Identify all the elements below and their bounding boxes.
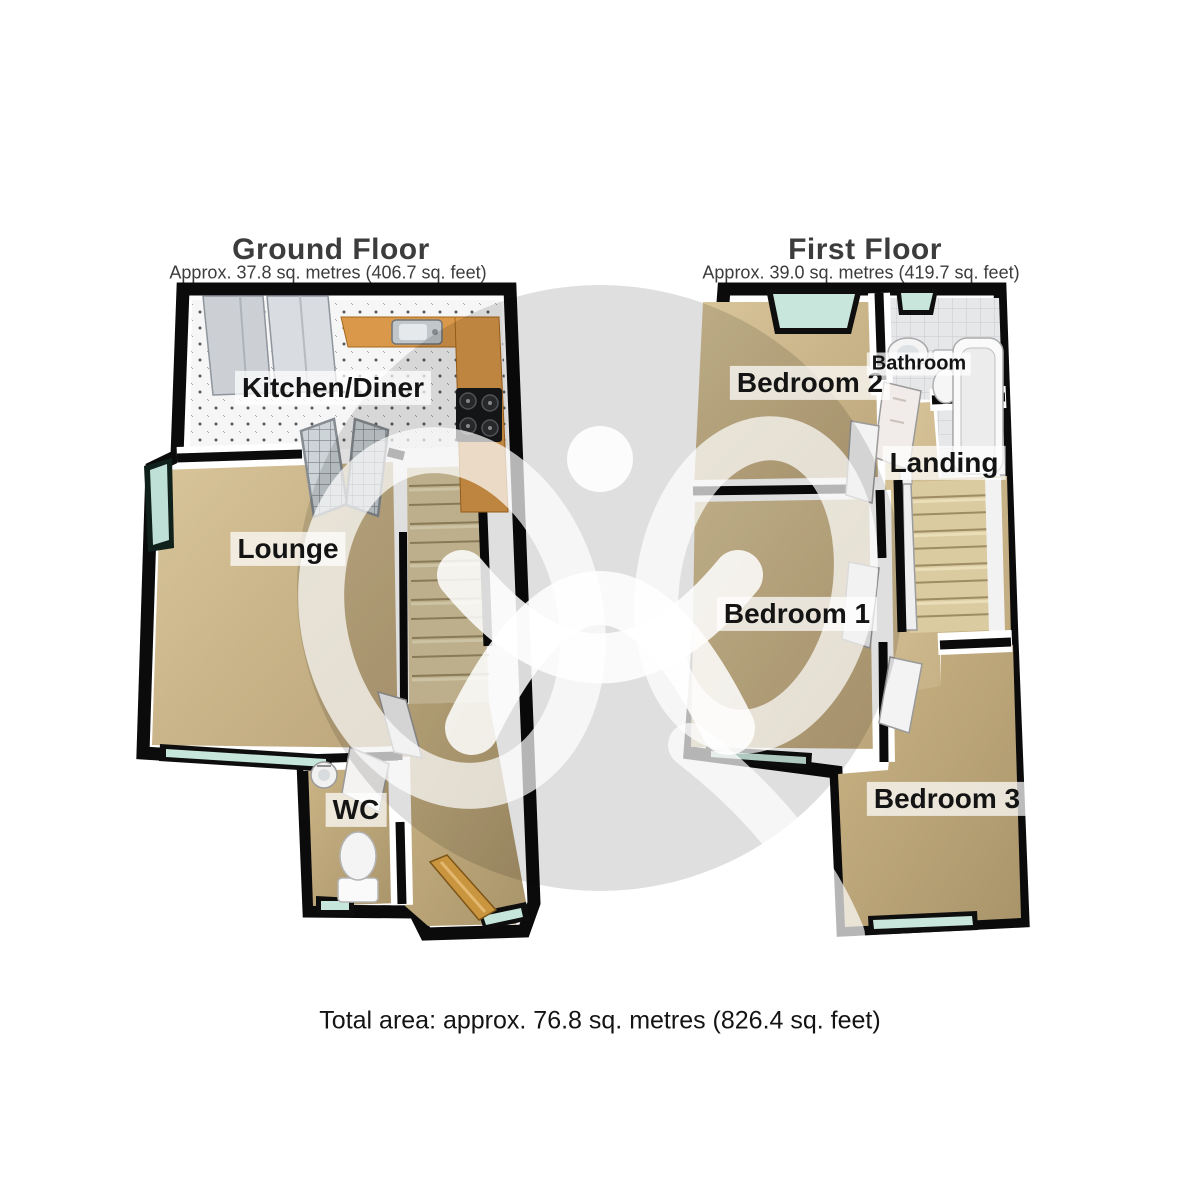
ground-floor-subtitle: Approx. 37.8 sq. metres (406.7 sq. feet) xyxy=(169,263,486,284)
room-label-bedroom1: Bedroom 1 xyxy=(717,597,877,631)
toilet-cistern xyxy=(338,878,378,902)
wc-sink-basin xyxy=(318,769,330,781)
sink-basin xyxy=(399,324,427,340)
window-glass xyxy=(773,294,855,328)
floorplan-page: Ground Floor Approx. 37.8 sq. metres (40… xyxy=(0,0,1200,1200)
sink-tap xyxy=(432,329,438,335)
window-glass xyxy=(150,464,169,545)
room-label-landing: Landing xyxy=(883,446,1006,480)
toilet-bowl xyxy=(340,832,376,880)
first-floor-subtitle: Approx. 39.0 sq. metres (419.7 sq. feet) xyxy=(702,263,1019,284)
room-label-bedroom3: Bedroom 3 xyxy=(867,782,1027,816)
total-area-text: Total area: approx. 76.8 sq. metres (826… xyxy=(319,1007,880,1036)
room-label-lounge: Lounge xyxy=(230,532,345,566)
room-label-bathroom: Bathroom xyxy=(867,353,971,376)
room-label-wc: WC xyxy=(326,793,387,827)
room-label-kitchen-diner: Kitchen/Diner xyxy=(235,371,431,405)
watermark-figure-head xyxy=(567,426,633,492)
window-glass xyxy=(901,293,933,310)
stairs-side-wall xyxy=(993,478,997,632)
